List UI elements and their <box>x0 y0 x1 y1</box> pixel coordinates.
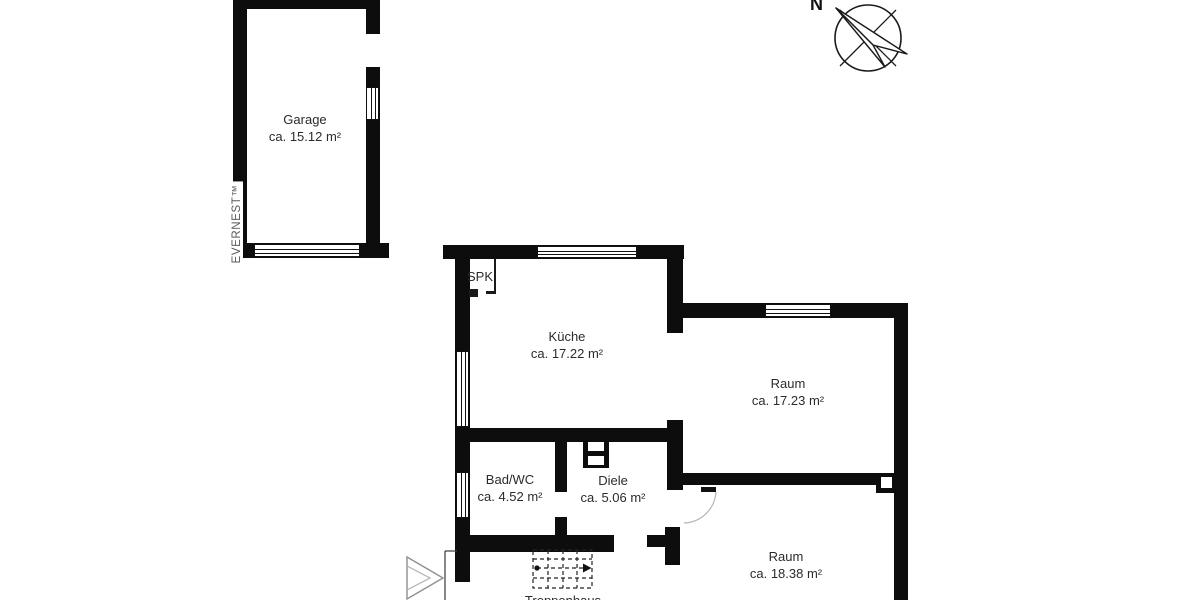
room-label-spk: SPK <box>467 269 493 284</box>
room-label-diele: Diele ca. 5.06 m² <box>580 472 645 506</box>
floorplan: N EVERNEST™ Garage ca. 15.12 m² SPK Küch… <box>0 0 1200 600</box>
room-area: ca. 18.38 m² <box>750 565 822 582</box>
room-area: ca. 17.23 m² <box>752 392 824 409</box>
room-area: ca. 17.22 m² <box>531 345 603 362</box>
entrance-triangle <box>407 557 443 599</box>
room-area: ca. 15.12 m² <box>269 128 341 145</box>
room-name: Diele <box>580 472 645 489</box>
room-label-treppenhaus: Treppenhaus <box>525 592 601 600</box>
room-label-kueche: Küche ca. 17.22 m² <box>531 328 603 362</box>
door-symbol-diele-raum <box>684 490 716 524</box>
room-label-garage: Garage ca. 15.12 m² <box>269 111 341 145</box>
annotations-layer <box>0 0 1200 600</box>
room-name: Garage <box>269 111 341 128</box>
compass-north-label: N <box>810 0 823 15</box>
room-label-raum1: Raum ca. 17.23 m² <box>752 375 824 409</box>
room-label-raum2: Raum ca. 18.38 m² <box>750 548 822 582</box>
room-name: Küche <box>531 328 603 345</box>
room-label-badwc: Bad/WC ca. 4.52 m² <box>477 471 542 505</box>
compass-rose <box>835 5 907 71</box>
room-name: Raum <box>750 548 822 565</box>
entrance-outline <box>445 551 457 600</box>
room-area: ca. 5.06 m² <box>580 489 645 506</box>
room-name: Bad/WC <box>477 471 542 488</box>
watermark-text: EVERNEST™ <box>231 182 243 267</box>
room-name: Raum <box>752 375 824 392</box>
room-area: ca. 4.52 m² <box>477 488 542 505</box>
